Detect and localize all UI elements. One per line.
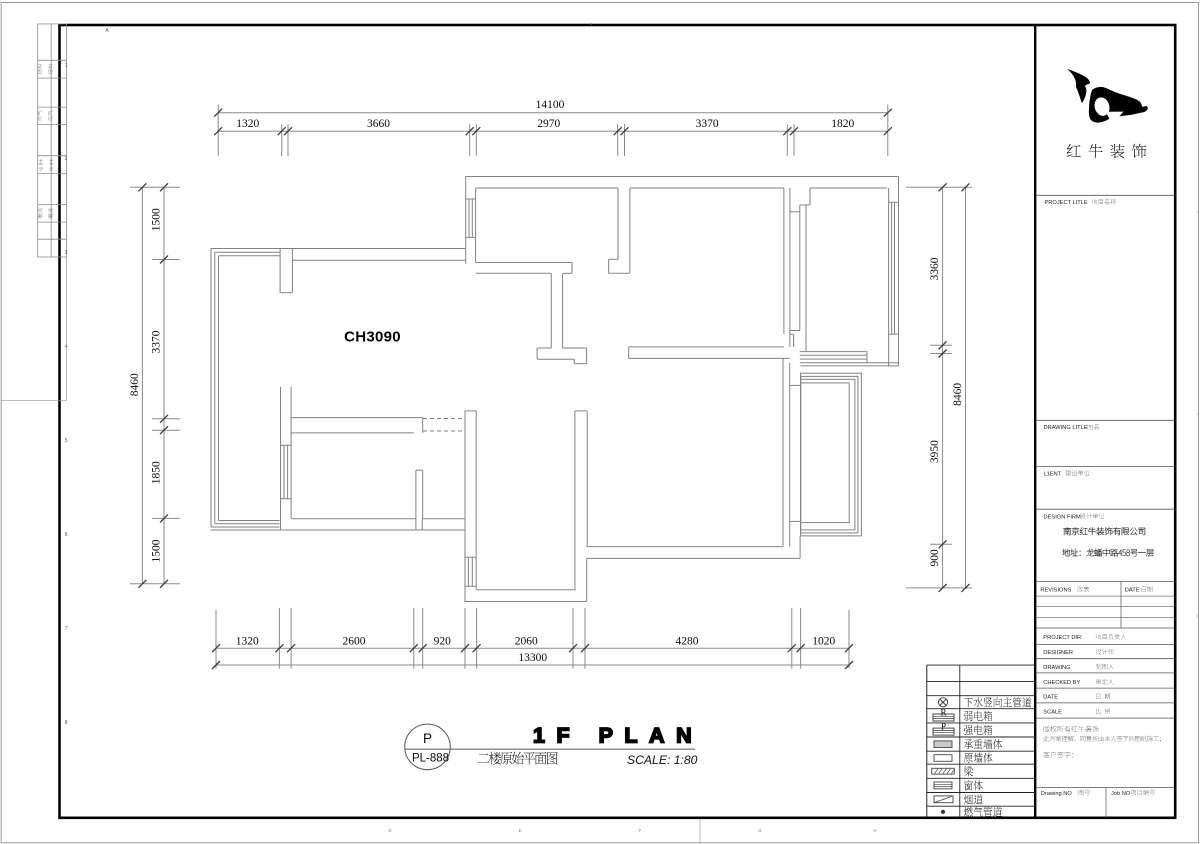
svg-text:8460: 8460 bbox=[952, 383, 964, 406]
svg-text:P: P bbox=[423, 731, 432, 746]
svg-text:F: F bbox=[639, 828, 642, 833]
svg-text:DRAWING: DRAWING bbox=[1043, 665, 1070, 671]
svg-text:PROJECT LITLE: PROJECT LITLE bbox=[1045, 200, 1088, 206]
svg-text:2600: 2600 bbox=[343, 636, 366, 648]
svg-text:1320: 1320 bbox=[236, 636, 259, 648]
svg-text:4280: 4280 bbox=[676, 636, 699, 648]
svg-text:1500: 1500 bbox=[151, 208, 163, 231]
svg-text:E: E bbox=[519, 828, 522, 833]
svg-text:Drawing NO: Drawing NO bbox=[1041, 791, 1073, 797]
svg-text:H: H bbox=[873, 828, 876, 833]
svg-text:1320: 1320 bbox=[236, 118, 259, 130]
svg-text:CH3090: CH3090 bbox=[344, 329, 401, 346]
svg-text:1820: 1820 bbox=[831, 118, 854, 130]
svg-text:R: R bbox=[940, 708, 946, 718]
svg-text:G: G bbox=[758, 828, 761, 833]
svg-text:DATE: DATE bbox=[1125, 588, 1140, 594]
svg-text:D: D bbox=[388, 828, 391, 833]
svg-text:2970: 2970 bbox=[537, 118, 560, 130]
svg-text:P: P bbox=[941, 722, 946, 732]
svg-text:900: 900 bbox=[929, 549, 941, 567]
svg-text:SCALE: SCALE bbox=[1043, 709, 1062, 715]
svg-text:1020: 1020 bbox=[812, 636, 835, 648]
svg-text:2: 2 bbox=[65, 156, 68, 162]
svg-text:DESIGN FIRM: DESIGN FIRM bbox=[1044, 514, 1082, 520]
svg-text:14100: 14100 bbox=[536, 99, 565, 111]
svg-text:Job NO: Job NO bbox=[1111, 791, 1131, 797]
svg-text:L1ENT: L1ENT bbox=[1044, 472, 1062, 478]
svg-text:1F PLAN: 1F PLAN bbox=[533, 724, 703, 748]
svg-text:1500: 1500 bbox=[151, 539, 163, 562]
svg-text:1850: 1850 bbox=[151, 461, 163, 484]
svg-text:CHECKED BY: CHECKED BY bbox=[1043, 680, 1080, 686]
svg-text:3370: 3370 bbox=[151, 330, 163, 353]
svg-text:3360: 3360 bbox=[929, 257, 941, 280]
svg-text:6: 6 bbox=[65, 532, 68, 538]
svg-text:PROJECT DIR: PROJECT DIR bbox=[1043, 635, 1081, 641]
svg-text:8: 8 bbox=[65, 720, 68, 726]
svg-text:DESIGNER: DESIGNER bbox=[1043, 650, 1073, 656]
svg-text:8460: 8460 bbox=[129, 373, 141, 396]
svg-text:PL-888: PL-888 bbox=[412, 753, 449, 765]
svg-text:13300: 13300 bbox=[518, 652, 547, 664]
svg-text:7: 7 bbox=[65, 626, 68, 632]
svg-text:DRAWING LITLE: DRAWING LITLE bbox=[1044, 425, 1088, 431]
svg-text:3950: 3950 bbox=[929, 440, 941, 463]
svg-text:3370: 3370 bbox=[696, 118, 719, 130]
svg-text:920: 920 bbox=[434, 636, 452, 648]
svg-text:5: 5 bbox=[65, 438, 68, 444]
svg-text:3: 3 bbox=[65, 250, 68, 256]
svg-text:3660: 3660 bbox=[367, 118, 390, 130]
svg-text:REVISIONS: REVISIONS bbox=[1040, 588, 1071, 594]
svg-text:SCALE: 1:80: SCALE: 1:80 bbox=[627, 753, 698, 767]
svg-text:DATE: DATE bbox=[1043, 695, 1058, 701]
svg-text:2060: 2060 bbox=[515, 636, 538, 648]
svg-text:1: 1 bbox=[65, 63, 68, 69]
